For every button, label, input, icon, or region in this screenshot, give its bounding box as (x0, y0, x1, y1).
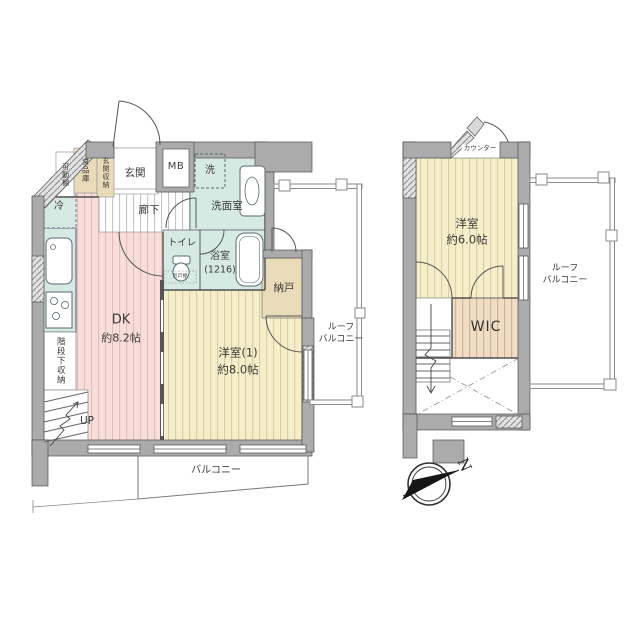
sliding-partition (160, 280, 164, 452)
mb-label: MB (168, 162, 185, 172)
senmenshitsu-label: 洗面室 (211, 201, 243, 212)
up-label: UP (80, 416, 94, 427)
balcony (33, 456, 308, 513)
floorplan-drawing (0, 0, 640, 640)
under-stair-storage-label: 階段下収納 (56, 337, 65, 385)
genkan-label: 玄関 (125, 168, 146, 179)
wic-label: WIC (471, 320, 502, 334)
sink-faucet (51, 245, 56, 250)
dk-size-label: 約8.2帖 (101, 333, 141, 344)
bathtub-inner (240, 237, 260, 283)
roof-balcony2-label-line1: ルーフ (552, 265, 578, 274)
yoshitsu2-label: 洋室 (456, 218, 479, 230)
roof-balcony2-label-line2: バルコニー (543, 277, 588, 286)
yoshitsu2-size-label: 約6.0帖 (446, 234, 487, 246)
yoshitsu1-label: 洋室(1) (218, 347, 257, 359)
dk-label: DK (112, 314, 131, 327)
stove (46, 292, 72, 328)
yoshitsu1-size-label: 約8.0帖 (217, 364, 258, 376)
hanging-cupboard-label: 吊戸棚 (172, 275, 187, 280)
counter-label: カウンター (462, 145, 499, 152)
kitchen-sink (46, 238, 72, 284)
movable-shelf-label: 可動棚 (62, 163, 69, 187)
pantry-label: 食品庫 (82, 157, 90, 183)
balcony-label: バルコニー (191, 466, 241, 476)
nando-label: 納戸 (274, 283, 295, 294)
genkan-storage-label: 玄関収納 (102, 157, 109, 189)
floorplan-canvas: DK 約8.2帖 洋室(1) 約8.0帖 玄関 MB 廊下 洗 洗面室 トイレ … (0, 0, 640, 640)
washer-label: 洗 (205, 166, 215, 176)
fridge-label: 冷 (54, 202, 64, 212)
bathroom-label: 浴室 (210, 252, 230, 262)
floor2-plan (403, 117, 617, 463)
washbasin-bowl (245, 177, 259, 205)
roof-balcony1-label-line2: バルコニー (319, 336, 364, 345)
roof-balcony1-label-line1: ルーフ (328, 324, 354, 333)
bathroom-size-label: (1216) (204, 265, 236, 275)
stairs2-area (416, 330, 450, 382)
compass (402, 463, 459, 505)
toilet-label: トイレ (168, 238, 197, 248)
rouka-label: 廊下 (139, 205, 160, 216)
